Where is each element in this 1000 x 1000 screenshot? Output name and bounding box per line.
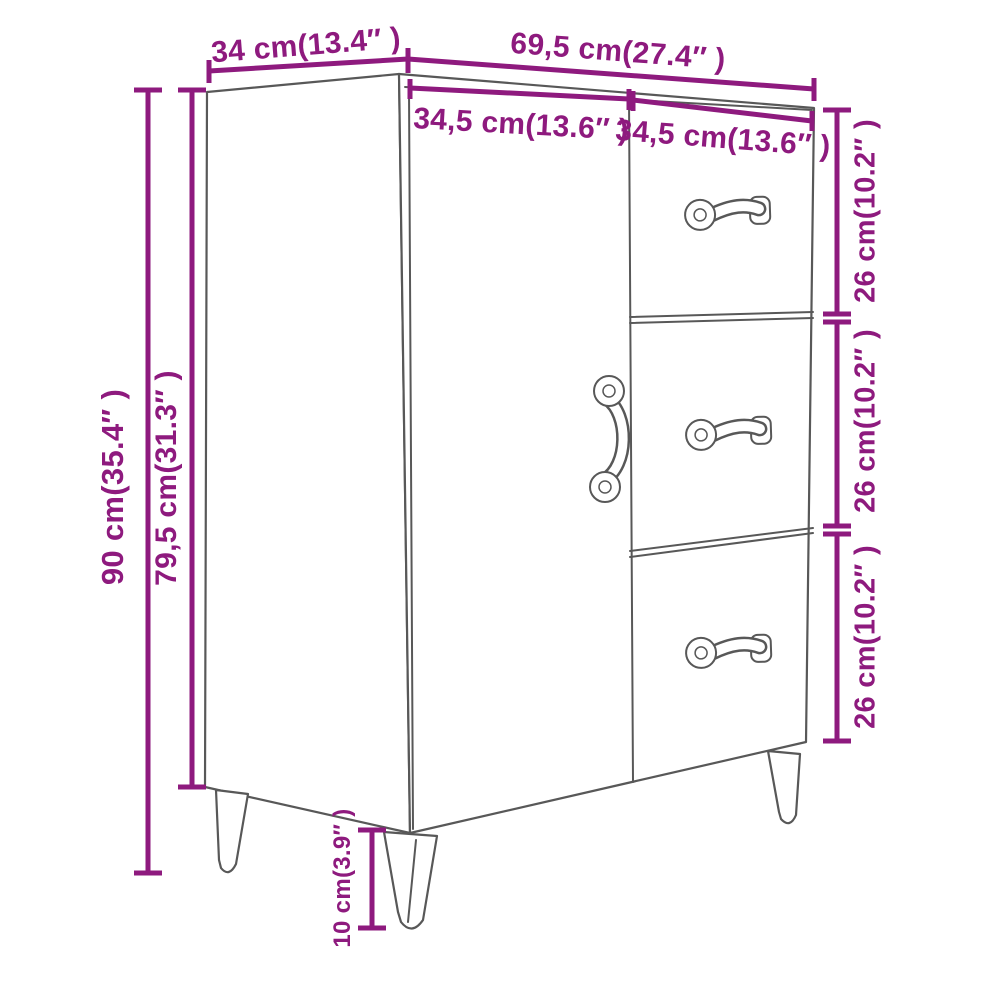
dim-label-height-total: 90 cm(35.4″ ) — [95, 389, 131, 585]
dim-label-legs: 10 cm(3.9″ ) — [329, 808, 357, 947]
dim-line-drawer-bottom — [823, 534, 851, 741]
leg-back-left — [216, 790, 248, 872]
door-handle-mount-bottom — [590, 472, 620, 502]
leg-front-left — [384, 832, 437, 929]
dim-label-height-body: 79,5 cm(31.3″ ) — [150, 370, 184, 586]
sideboard-dimension-diagram: 34 cm(13.4″ ) 69,5 cm(27.4″ ) 34,5 cm(13… — [0, 0, 1000, 1000]
door-handle-mount-top — [594, 376, 624, 406]
dim-line-legs — [358, 830, 386, 928]
leg-front-right — [768, 751, 800, 823]
dim-line-drawer-middle — [823, 322, 851, 526]
dim-label-drawer-bottom: 26 cm(10.2″ ) — [850, 545, 883, 729]
dim-label-drawer-middle: 26 cm(10.2″ ) — [850, 329, 883, 513]
side-panel — [205, 74, 410, 833]
dim-label-drawer-top: 26 cm(10.2″ ) — [850, 119, 883, 303]
front-face — [399, 74, 814, 833]
sideboard-drawing — [205, 74, 814, 929]
